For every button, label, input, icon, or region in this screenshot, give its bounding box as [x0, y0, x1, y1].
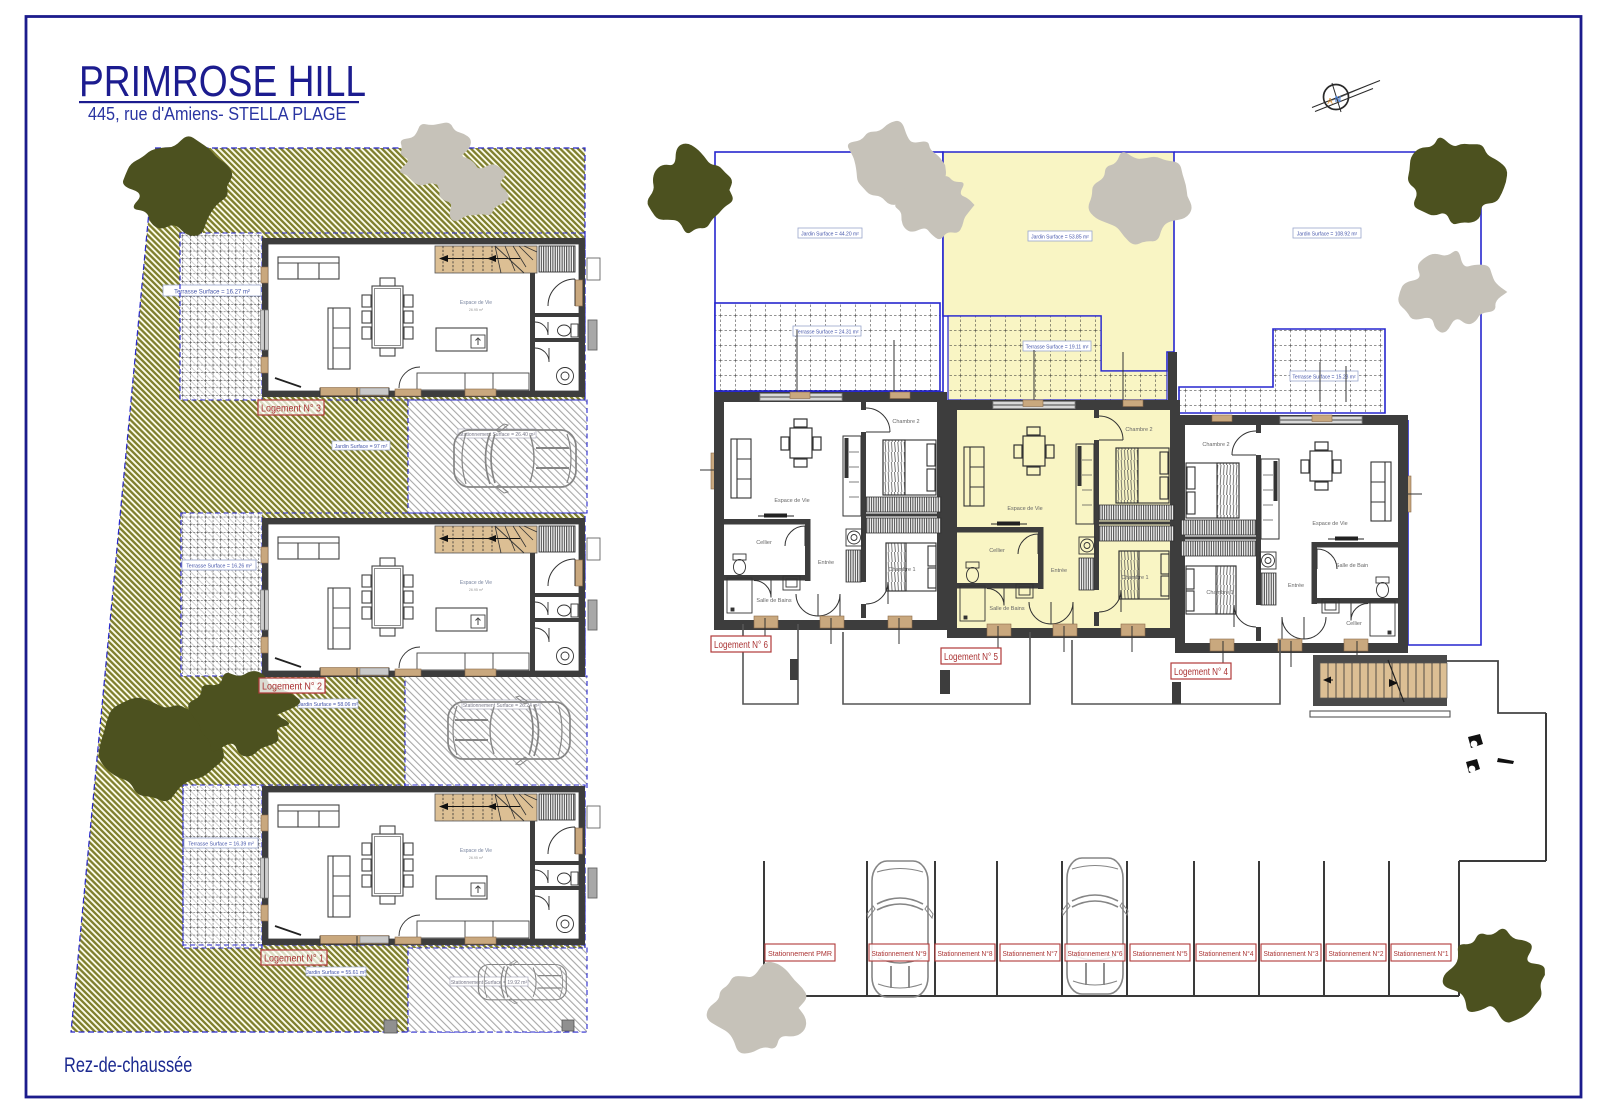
svg-text:Jardin Surface = 97 m²: Jardin Surface = 97 m²: [335, 444, 388, 450]
svg-text:Jardin Surface = 44.20 m²: Jardin Surface = 44.20 m²: [801, 232, 859, 238]
svg-text:Stationnement N°6: Stationnement N°6: [1068, 949, 1123, 958]
svg-text:Stationnement N°5: Stationnement N°5: [1133, 949, 1188, 958]
svg-text:Logement N° 1: Logement N° 1: [264, 954, 324, 965]
svg-text:Terrasse Surface = 19.11 m²: Terrasse Surface = 19.11 m²: [1026, 345, 1089, 351]
svg-text:Salle de Bain: Salle de Bain: [1336, 563, 1368, 569]
svg-text:Terrasse Surface = 24.31 m²: Terrasse Surface = 24.31 m²: [795, 330, 859, 336]
svg-text:A: A: [1327, 97, 1333, 106]
svg-text:Chambre 2: Chambre 2: [1202, 442, 1229, 448]
svg-text:Cellier: Cellier: [1346, 621, 1362, 627]
svg-text:Terrasse Surface = 16.39 m²: Terrasse Surface = 16.39 m²: [188, 842, 254, 848]
svg-text:Stationnement N°1: Stationnement N°1: [1394, 949, 1449, 958]
svg-text:Jardin Surface = 55.61 m²: Jardin Surface = 55.61 m²: [306, 970, 366, 976]
svg-text:Stationnement N°9: Stationnement N°9: [872, 949, 927, 958]
svg-text:Terrasse Surface = 16.27 m²: Terrasse Surface = 16.27 m²: [174, 290, 250, 296]
svg-text:Logement N° 6: Logement N° 6: [714, 640, 768, 651]
svg-text:445, rue d'Amiens- STELLA PLAG: 445, rue d'Amiens- STELLA PLAGE: [88, 103, 346, 124]
svg-text:Stationnement N°4: Stationnement N°4: [1199, 949, 1254, 958]
svg-text:Stationnement PMR: Stationnement PMR: [768, 949, 832, 958]
svg-text:Espace de Vie: Espace de Vie: [1312, 521, 1347, 527]
svg-text:PRIMROSE HILL: PRIMROSE HILL: [79, 56, 366, 106]
svg-text:Stationnement N°7: Stationnement N°7: [1003, 949, 1058, 958]
svg-text:Chambre 1: Chambre 1: [1206, 590, 1233, 596]
svg-text:Logement N° 4: Logement N° 4: [1174, 667, 1228, 678]
svg-text:Entrée: Entrée: [1288, 583, 1304, 589]
svg-text:Terrasse Surface = 16.26 m²: Terrasse Surface = 16.26 m²: [186, 564, 252, 570]
svg-text:N: N: [1335, 94, 1341, 104]
svg-text:Jardin Surface = 53.85 m²: Jardin Surface = 53.85 m²: [1031, 235, 1089, 241]
svg-text:Logement N° 3: Logement N° 3: [261, 404, 321, 415]
svg-text:Jardin Surface = 108.92 m²: Jardin Surface = 108.92 m²: [1297, 232, 1358, 238]
svg-text:Rez-de-chaussée: Rez-de-chaussée: [64, 1053, 192, 1076]
svg-text:Stationnement N°3: Stationnement N°3: [1264, 949, 1319, 958]
svg-text:Logement N° 5: Logement N° 5: [944, 652, 998, 663]
svg-text:Jardin Surface = 58.06 m²: Jardin Surface = 58.06 m²: [298, 702, 358, 708]
svg-text:Stationnement Surface = 26.24: Stationnement Surface = 26.24 m²: [463, 703, 540, 709]
svg-text:Stationnement Surface = 19.92: Stationnement Surface = 19.92 m²: [451, 980, 528, 986]
svg-text:Logement N° 2: Logement N° 2: [262, 682, 322, 693]
svg-text:Stationnement N°2: Stationnement N°2: [1329, 949, 1384, 958]
svg-text:Stationnement Surface = 26.40: Stationnement Surface = 26.40 m²: [459, 432, 536, 438]
svg-text:Stationnement N°8: Stationnement N°8: [938, 949, 993, 958]
